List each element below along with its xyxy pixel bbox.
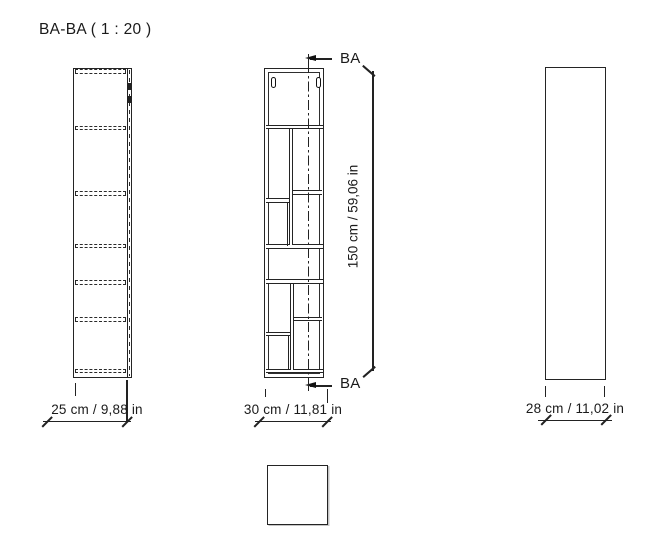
section-label-bottom: BA	[340, 375, 361, 392]
hidden-shelf-line	[75, 126, 127, 131]
section-cut-line	[308, 63, 309, 383]
hidden-shelf-line	[75, 191, 127, 196]
extension-line	[265, 389, 266, 397]
extension-line	[604, 386, 605, 397]
side-outline	[545, 67, 606, 380]
dimension-line	[538, 420, 612, 421]
extension-line	[75, 383, 76, 396]
hidden-bottom-panel	[75, 369, 127, 374]
door-slot	[316, 77, 321, 89]
dimension-line	[255, 421, 331, 422]
drawing-title: BA-BA ( 1 : 20 )	[39, 21, 151, 39]
plan-outline	[267, 465, 328, 525]
shelf-line-left	[266, 198, 289, 202]
section-label-top: BA	[340, 50, 361, 67]
drawing-canvas: BA-BA ( 1 : 20 ) 25 cm / 9,88 in	[0, 0, 669, 549]
hidden-shelf-line	[75, 280, 127, 285]
section-width-dimension: 25 cm / 9,88 in	[32, 402, 162, 417]
shelf-line	[266, 125, 323, 130]
side-depth-dimension: 28 cm / 11,02 in	[510, 401, 640, 416]
height-dimension-line	[372, 71, 373, 371]
dimension-line	[43, 421, 131, 422]
vertical-divider	[290, 284, 294, 371]
back-panel-hidden-line	[129, 70, 130, 376]
hinge-mark	[127, 96, 131, 103]
compartment-line	[288, 336, 289, 370]
back-panel-line	[127, 68, 128, 378]
extension-line	[327, 389, 328, 403]
section-tick-top	[308, 54, 309, 64]
shelf-line-left	[266, 332, 290, 336]
door-slot	[271, 77, 276, 89]
hidden-shelf-line	[75, 317, 127, 322]
compartment-line	[287, 203, 288, 246]
hidden-top-panel	[75, 69, 127, 74]
extension-line	[545, 386, 546, 397]
section-outline	[73, 68, 132, 378]
shelf-line	[266, 244, 323, 249]
vertical-divider	[289, 129, 293, 245]
front-width-dimension: 30 cm / 11,81 in	[228, 402, 358, 417]
hidden-shelf-line	[75, 244, 127, 249]
section-tick-bottom	[308, 381, 309, 391]
hinge-mark	[127, 83, 131, 90]
height-dimension: 150 cm / 59,06 in	[346, 152, 363, 282]
